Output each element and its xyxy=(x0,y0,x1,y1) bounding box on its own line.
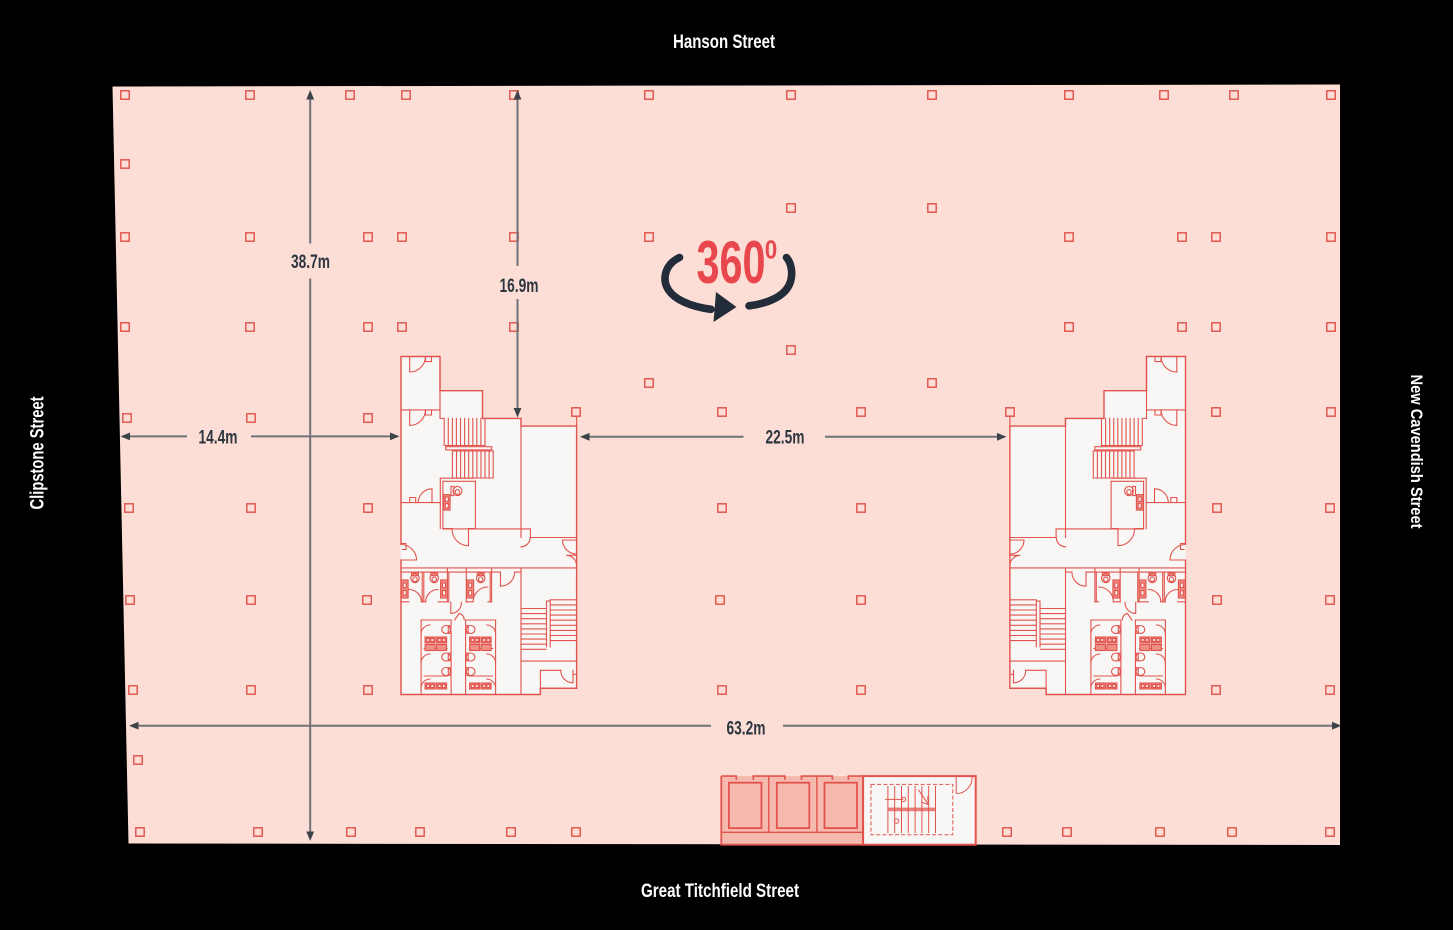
svg-text:0: 0 xyxy=(765,235,778,265)
svg-text:360: 360 xyxy=(697,229,766,296)
svg-text:Hanson Street: Hanson Street xyxy=(673,31,775,53)
svg-text:Clipstone Street: Clipstone Street xyxy=(27,396,49,509)
svg-text:63.2m: 63.2m xyxy=(727,718,766,740)
svg-text:22.5m: 22.5m xyxy=(766,426,805,448)
svg-text:New Cavendish Street: New Cavendish Street xyxy=(1407,375,1426,529)
svg-text:Great Titchfield Street: Great Titchfield Street xyxy=(641,880,799,902)
svg-text:14.4m: 14.4m xyxy=(199,426,238,448)
svg-text:38.7m: 38.7m xyxy=(291,251,330,273)
svg-text:16.9m: 16.9m xyxy=(500,275,539,297)
